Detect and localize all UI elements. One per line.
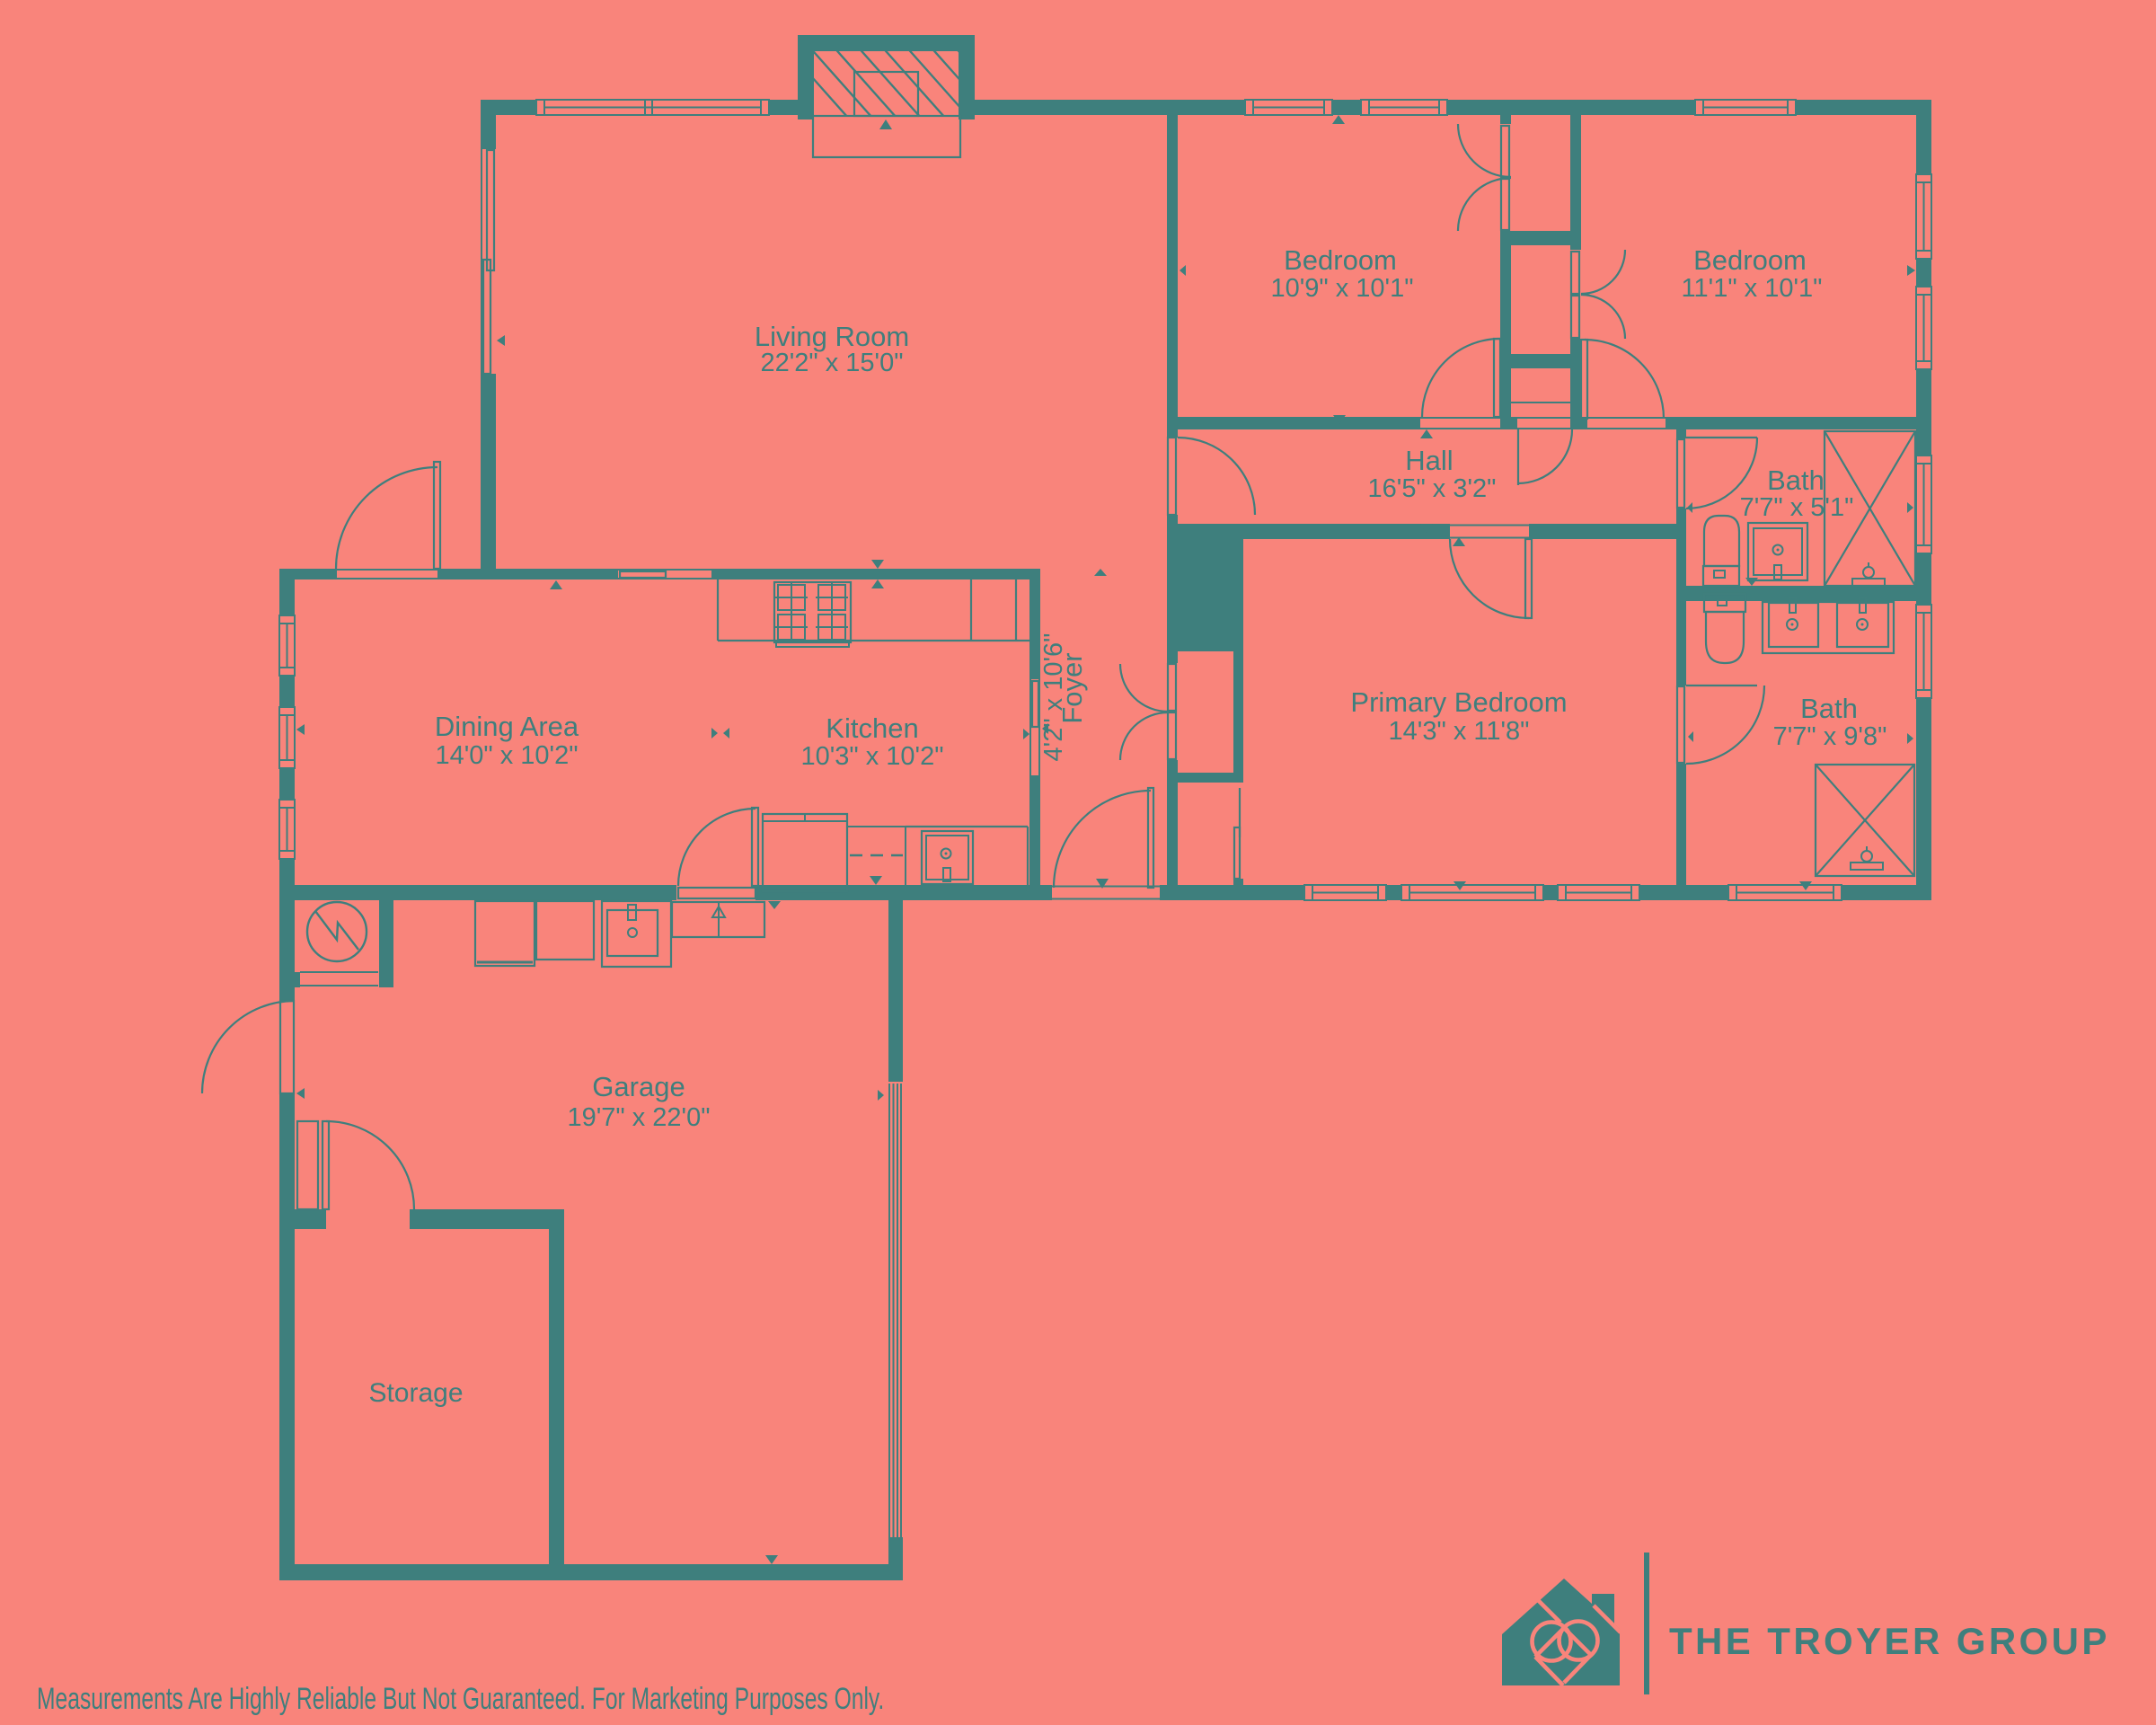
svg-text:4'2" x 10'6": 4'2" x 10'6" <box>1039 633 1068 762</box>
svg-text:22'2" x 15'0": 22'2" x 15'0" <box>760 349 903 377</box>
svg-text:Bath: Bath <box>1800 693 1858 724</box>
svg-text:16'5" x 3'2": 16'5" x 3'2" <box>1368 474 1497 503</box>
svg-text:Bedroom: Bedroom <box>1693 244 1807 276</box>
svg-text:Measurements Are Highly Reliab: Measurements Are Highly Reliable But Not… <box>37 1682 884 1716</box>
svg-text:Dining Area: Dining Area <box>435 711 579 742</box>
svg-text:Garage: Garage <box>592 1071 685 1102</box>
svg-text:7'7" x 5'1": 7'7" x 5'1" <box>1740 493 1854 522</box>
svg-text:Hall: Hall <box>1405 445 1453 476</box>
svg-text:10'3" x 10'2": 10'3" x 10'2" <box>800 742 943 771</box>
svg-text:10'9" x 10'1": 10'9" x 10'1" <box>1270 274 1413 303</box>
svg-text:Storage: Storage <box>368 1378 463 1408</box>
svg-text:Bedroom: Bedroom <box>1284 244 1397 276</box>
svg-text:Kitchen: Kitchen <box>826 712 918 744</box>
svg-text:14'0" x 10'2": 14'0" x 10'2" <box>435 741 578 770</box>
svg-text:14'3" x 11'8": 14'3" x 11'8" <box>1389 717 1530 746</box>
svg-text:Bath: Bath <box>1767 464 1825 496</box>
svg-text:7'7" x 9'8": 7'7" x 9'8" <box>1773 722 1887 751</box>
svg-text:Living Room: Living Room <box>755 321 909 352</box>
svg-text:THE TROYER GROUP: THE TROYER GROUP <box>1669 1620 2110 1662</box>
svg-text:11'1" x 10'1": 11'1" x 10'1" <box>1682 274 1823 303</box>
svg-text:19'7" x 22'0": 19'7" x 22'0" <box>567 1103 710 1132</box>
svg-text:Primary Bedroom: Primary Bedroom <box>1350 686 1567 718</box>
